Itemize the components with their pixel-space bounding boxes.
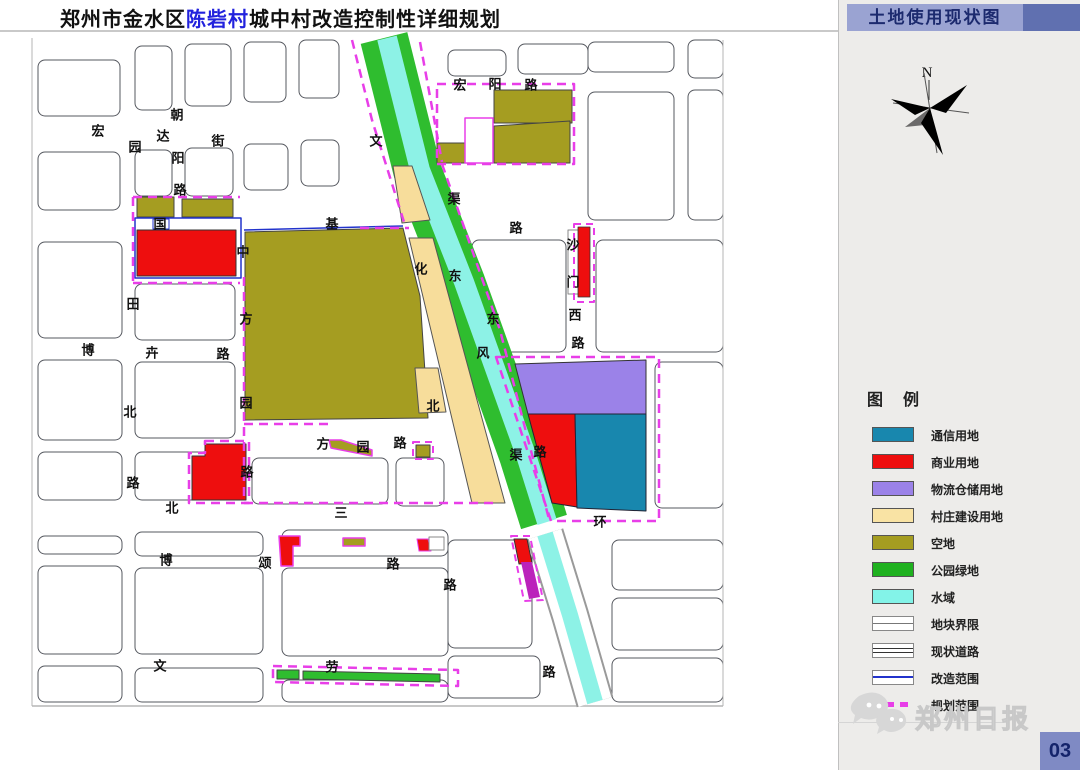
road-label: 园 xyxy=(128,140,141,155)
road-label: 卉 xyxy=(145,346,158,361)
legend-label: 商业用地 xyxy=(931,454,979,471)
map-parcel xyxy=(396,458,444,506)
legend-item-2: 物流仓储用地 xyxy=(867,478,1077,505)
road-label: 渠 xyxy=(446,192,461,207)
map-shape xyxy=(494,90,572,123)
title-highlight: 陈砦村 xyxy=(186,9,249,31)
road-label: 劳 xyxy=(325,660,338,675)
legend-label: 公园绿地 xyxy=(931,562,979,579)
road-label: 方 xyxy=(239,312,252,327)
map-shape xyxy=(245,228,428,420)
road-label: 环 xyxy=(593,515,606,530)
map-shape xyxy=(137,197,174,217)
page: 宏达街朝阳路园国基路中方园路田北路博卉路文化北渠东路东风渠沙门西路宏阳路方园路北… xyxy=(0,0,1080,770)
road-label: 路 xyxy=(509,221,523,236)
map-parcel xyxy=(135,284,235,340)
brand-text: 郑州日报 xyxy=(915,704,1031,734)
map-parcel xyxy=(38,536,122,554)
road-label: 路 xyxy=(542,665,556,680)
map-parcel xyxy=(38,566,122,654)
panel-header: 土地使用现状图 xyxy=(847,4,1080,31)
map-parcel xyxy=(38,152,120,210)
road-label: 达 xyxy=(156,129,169,144)
road-label: 东 xyxy=(448,269,461,284)
legend-label: 村庄建设用地 xyxy=(931,508,1003,525)
road-label: 阳 xyxy=(171,151,184,166)
map-parcel xyxy=(655,362,723,508)
road-label: 园 xyxy=(356,440,369,455)
legend-swatch-line-solid xyxy=(872,670,914,685)
legend-item-7: 地块界限 xyxy=(867,613,1077,640)
legend: 图 例 通信用地商业用地物流仓储用地村庄建设用地空地公园绿地水域地块界限现状道路… xyxy=(867,386,1077,721)
map-parcel xyxy=(135,532,263,556)
road-label: 博 xyxy=(159,553,172,568)
map-parcel xyxy=(612,598,723,650)
side-panel: 土地使用现状图 N 图 例 通信用地商业用地物流仓储用地村庄建设用地空地公园绿地… xyxy=(838,0,1080,770)
road-label: 路 xyxy=(386,557,400,572)
legend-swatch-fill xyxy=(872,508,914,523)
road-label: 田 xyxy=(126,297,139,312)
map-shape xyxy=(515,360,646,414)
road-label: 三 xyxy=(334,506,347,521)
road-label: 朝 xyxy=(170,108,183,123)
title-divider xyxy=(0,30,838,32)
legend-label: 物流仓储用地 xyxy=(931,481,1003,498)
legend-item-4: 空地 xyxy=(867,532,1077,559)
road-label: 路 xyxy=(126,476,140,491)
road-label: 东 xyxy=(486,312,499,327)
title-part2: 城中村改造控制性详细规划 xyxy=(249,9,501,31)
legend-swatch-fill xyxy=(872,562,914,577)
page-title: 郑州市金水区陈砦村城中村改造控制性详细规划 xyxy=(60,3,501,32)
road-label: 北 xyxy=(165,501,178,516)
map-shape xyxy=(182,199,233,217)
road-label: 北 xyxy=(123,405,136,420)
legend-label: 水域 xyxy=(931,589,955,606)
legend-swatch-fill xyxy=(872,481,914,496)
map-parcel xyxy=(588,92,674,220)
map-parcel xyxy=(282,568,448,656)
road-label: 渠 xyxy=(508,448,523,463)
legend-swatch-fill xyxy=(872,454,914,469)
road-label: 门 xyxy=(566,275,579,290)
map-parcel xyxy=(518,44,588,74)
road-label: 路 xyxy=(216,347,230,362)
map-shape xyxy=(429,537,444,550)
map-shape xyxy=(137,230,236,276)
road-label: 国 xyxy=(153,217,166,232)
road-label: 基 xyxy=(324,217,339,232)
brand-logo: 郑州日报 xyxy=(845,688,1045,738)
map-parcel xyxy=(185,148,233,196)
map-shape xyxy=(578,227,590,297)
road-label: 化 xyxy=(414,262,427,277)
road-label: 路 xyxy=(173,183,187,198)
map-parcel xyxy=(448,656,540,698)
road-label: 西 xyxy=(568,308,581,323)
legend-item-1: 商业用地 xyxy=(867,451,1077,478)
legend-label: 空地 xyxy=(931,535,955,552)
road-label: 路 xyxy=(524,78,538,93)
map-parcel xyxy=(688,90,723,220)
road-label: 路 xyxy=(571,336,585,351)
road-label: 中 xyxy=(236,245,249,260)
map-shape xyxy=(575,414,646,511)
title-part1: 郑州市金水区 xyxy=(60,9,186,31)
map-parcel xyxy=(38,360,122,440)
map-parcel xyxy=(135,46,172,110)
panel-header-title: 土地使用现状图 xyxy=(847,4,1023,31)
road-label: 阳 xyxy=(488,77,501,92)
road-label: 宏 xyxy=(453,78,466,93)
legend-label: 改造范围 xyxy=(931,670,979,687)
map-parcel xyxy=(612,540,723,590)
map-parcel xyxy=(299,40,339,98)
road-label: 文 xyxy=(369,134,383,149)
road-label: 文 xyxy=(153,659,167,674)
map-parcel xyxy=(612,658,723,702)
legend-swatch-line-double xyxy=(872,643,914,658)
road-label: 宏 xyxy=(91,124,104,139)
map-parcel xyxy=(135,568,263,654)
legend-items: 通信用地商业用地物流仓储用地村庄建设用地空地公园绿地水域地块界限现状道路改造范围… xyxy=(867,424,1077,721)
legend-item-6: 水域 xyxy=(867,586,1077,613)
map-shape xyxy=(277,670,299,679)
map-parcel xyxy=(688,40,723,78)
compass-n-label: N xyxy=(922,65,933,81)
legend-label: 现状道路 xyxy=(931,643,979,660)
map-parcel xyxy=(301,140,339,186)
map-parcel xyxy=(588,42,674,72)
map-parcel xyxy=(135,150,172,196)
legend-label: 通信用地 xyxy=(931,427,979,444)
road-label: 沙 xyxy=(566,238,579,253)
legend-item-8: 现状道路 xyxy=(867,640,1077,667)
map-parcel xyxy=(135,362,235,438)
road-label: 路 xyxy=(533,445,547,460)
wechat-icon xyxy=(851,692,906,734)
legend-swatch-fill xyxy=(872,535,914,550)
road-label: 路 xyxy=(240,465,254,480)
land-use-map: 宏达街朝阳路园国基路中方园路田北路博卉路文化北渠东路东风渠沙门西路宏阳路方园路北… xyxy=(0,0,838,770)
map-shape xyxy=(465,118,493,163)
legend-label: 地块界限 xyxy=(931,616,979,633)
legend-swatch-fill xyxy=(872,589,914,604)
map-parcel xyxy=(244,42,286,102)
map-parcel xyxy=(38,666,122,702)
road-label: 园 xyxy=(239,396,252,411)
map-parcel xyxy=(252,458,388,504)
road-label: 方 xyxy=(316,437,329,452)
road-label: 路 xyxy=(443,578,457,593)
panel-header-accent xyxy=(1023,4,1080,31)
map-parcel xyxy=(448,50,506,76)
map-parcel xyxy=(38,242,122,338)
legend-item-3: 村庄建设用地 xyxy=(867,505,1077,532)
map-parcel xyxy=(38,452,122,500)
legend-title: 图 例 xyxy=(867,386,1077,410)
legend-swatch-line-single xyxy=(872,616,914,631)
map-parcel xyxy=(244,144,288,190)
road-label: 博 xyxy=(81,343,94,358)
map-parcel xyxy=(185,44,231,106)
map-shape xyxy=(343,538,365,546)
map-parcel xyxy=(38,60,120,116)
legend-item-0: 通信用地 xyxy=(867,424,1077,451)
north-arrow-icon: N xyxy=(871,55,991,165)
road-label: 北 xyxy=(426,399,439,414)
road-label: 路 xyxy=(393,436,407,451)
page-number: 03 xyxy=(1040,732,1080,770)
road-label: 街 xyxy=(210,134,224,149)
map-shape xyxy=(494,121,570,163)
map-shape xyxy=(416,445,430,457)
road-label: 颂 xyxy=(258,556,271,571)
legend-item-5: 公园绿地 xyxy=(867,559,1077,586)
map-parcel xyxy=(596,240,723,352)
legend-swatch-fill xyxy=(872,427,914,442)
road-label: 风 xyxy=(476,346,489,361)
